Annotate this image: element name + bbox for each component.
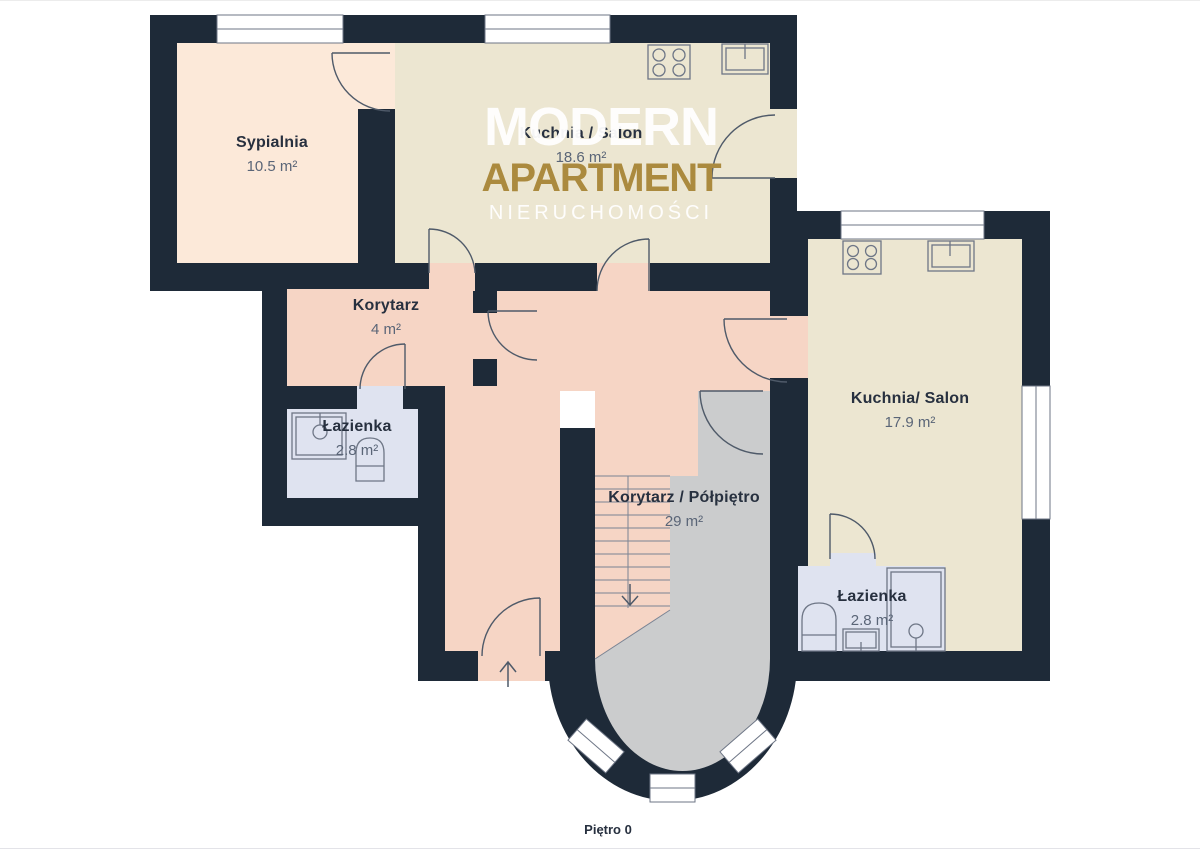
central-corridor-floor-2 — [595, 391, 698, 476]
window-right-kitchen-top — [841, 211, 984, 239]
floor-plan-page: Sypialnia 10.5 m² Kuchnia / Salon 18.6 m… — [0, 0, 1200, 849]
room-sypialnia-floor — [177, 43, 358, 263]
floor-plan-drawing — [0, 1, 1200, 849]
room-lazienka-lewa-floor — [287, 409, 418, 498]
mezzanine-floor-2 — [670, 476, 770, 609]
bathroom-left-doorway — [357, 386, 403, 409]
window-bedroom — [217, 15, 343, 43]
room-korytarz-floor — [287, 289, 473, 386]
bathroom-right-doorway — [830, 553, 876, 566]
central-corridor-floor — [497, 291, 770, 391]
mezzanine-floor — [698, 391, 770, 476]
room-lazienka-prawa-floor — [798, 566, 945, 651]
kitchen-hall-doorway — [597, 263, 650, 291]
window-right-kitchen-side — [1022, 386, 1050, 519]
corridor-doorway — [473, 313, 497, 359]
window-bay-bottom — [650, 774, 695, 802]
right-kitchen-doorway — [770, 316, 808, 378]
room-kuchnia-salon-gorna-floor — [395, 43, 770, 263]
window-kitchen-top — [485, 15, 610, 43]
exterior-doorway — [770, 109, 797, 178]
kitchen-corridor-doorway — [429, 263, 475, 291]
floor-level-label: Piętro 0 — [584, 822, 632, 837]
staircase-floor — [595, 476, 670, 608]
